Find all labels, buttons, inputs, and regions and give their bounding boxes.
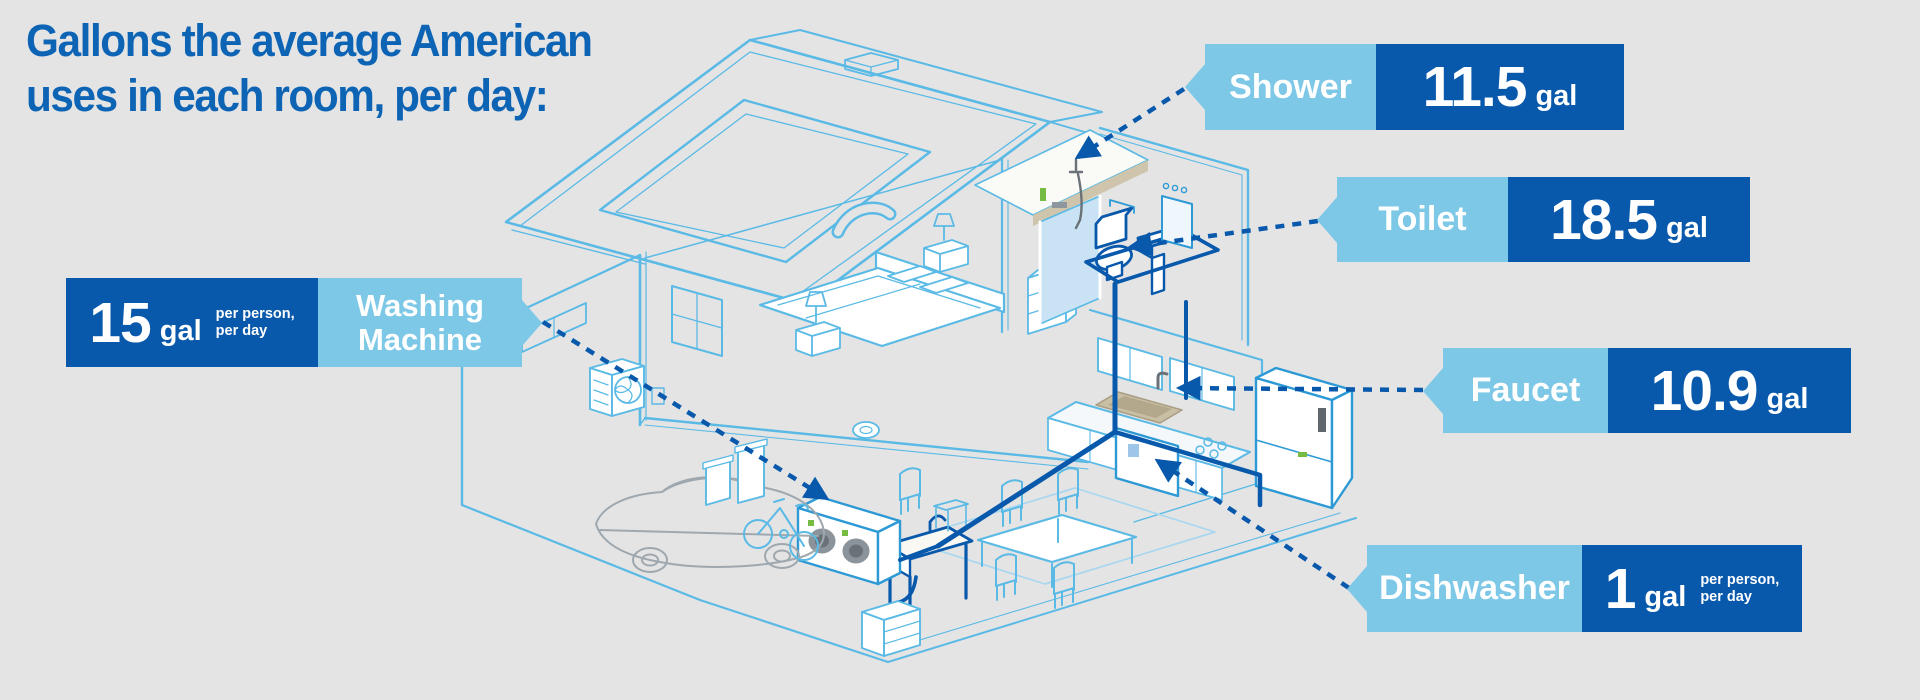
value-number: 1 <box>1605 556 1636 622</box>
room-label: Toilet <box>1378 201 1466 238</box>
trash-bins <box>703 439 767 505</box>
room-label-line-1: Washing <box>356 289 484 322</box>
note-line-2: per day <box>216 323 268 339</box>
skylight <box>600 100 930 262</box>
title-line-2: uses in each room, per day: <box>26 69 592 124</box>
drawer-unit <box>862 601 920 656</box>
chair <box>996 554 1016 600</box>
washing-machine-room-box: Washing Machine <box>318 278 522 367</box>
value-number: 18.5 <box>1550 187 1657 253</box>
connectors <box>543 89 1423 588</box>
chair <box>1058 468 1078 514</box>
note-line-1: per person, <box>216 306 295 322</box>
toilet-room-box: Toilet <box>1337 177 1508 262</box>
room-label: Dishwasher <box>1379 570 1570 607</box>
note-line-2: per day <box>1700 589 1752 605</box>
shower-value-box: 11.5 gal <box>1376 44 1624 130</box>
bathroom <box>975 128 1248 345</box>
value-unit: gal <box>1644 581 1686 614</box>
value-note: per person, per day <box>1700 572 1779 605</box>
note-line-1: per person, <box>1700 572 1779 588</box>
value-number: 10.9 <box>1651 358 1758 424</box>
washing-machine-value-box: 15 gal per person, per day <box>66 278 318 367</box>
connector-washing-machine <box>543 322 826 498</box>
robot-vacuum <box>853 422 879 438</box>
chair <box>900 468 920 514</box>
dishwasher-room-box: Dishwasher <box>1367 545 1582 632</box>
faucet-value-box: 10.9 gal <box>1608 348 1851 433</box>
nightstand-lamp <box>924 214 968 272</box>
pointer-left-icon <box>1423 368 1443 414</box>
room-label-line-2: Machine <box>358 323 482 356</box>
roof-vent <box>845 53 898 76</box>
chair <box>1054 562 1074 608</box>
value-number: 15 <box>89 290 150 356</box>
callout-dishwasher: Dishwasher 1 gal per person, per day <box>1367 545 1802 632</box>
mirror <box>1162 183 1192 248</box>
infographic: Gallons the average American uses in eac… <box>0 0 1920 700</box>
pointer-left-icon <box>1185 64 1205 110</box>
pointer-left-icon <box>1347 566 1367 612</box>
callout-shower: Shower 11.5 gal <box>1205 44 1624 130</box>
value-unit: gal <box>1535 80 1577 113</box>
dining-table <box>978 515 1136 587</box>
callout-toilet: Toilet 18.5 gal <box>1337 177 1750 262</box>
value-note: per person, per day <box>216 306 295 339</box>
shampoo-bottle <box>1040 188 1046 201</box>
room-label: Faucet <box>1471 372 1581 409</box>
connector-faucet <box>1180 388 1423 390</box>
room-label: Shower <box>1229 69 1352 106</box>
dishwasher-value-box: 1 gal per person, per day <box>1582 545 1802 632</box>
gable-window <box>672 286 722 356</box>
soap <box>1052 202 1067 208</box>
fridge-handle <box>1318 408 1326 432</box>
value-number: 11.5 <box>1423 54 1527 120</box>
shower-room-box: Shower <box>1205 44 1376 130</box>
value-unit: gal <box>160 315 202 348</box>
page-title: Gallons the average American uses in eac… <box>26 14 592 124</box>
value-unit: gal <box>1767 383 1809 416</box>
toilet-value-box: 18.5 gal <box>1508 177 1750 262</box>
faucet-room-box: Faucet <box>1443 348 1608 433</box>
pointer-left-icon <box>1317 197 1337 243</box>
garage <box>590 359 824 572</box>
callout-washing-machine: 15 gal per person, per day Washing Machi… <box>66 278 522 367</box>
value-unit: gal <box>1666 212 1708 245</box>
pointer-right-icon <box>522 300 542 346</box>
callout-faucet: Faucet 10.9 gal <box>1443 348 1851 433</box>
title-line-1: Gallons the average American <box>26 14 592 69</box>
